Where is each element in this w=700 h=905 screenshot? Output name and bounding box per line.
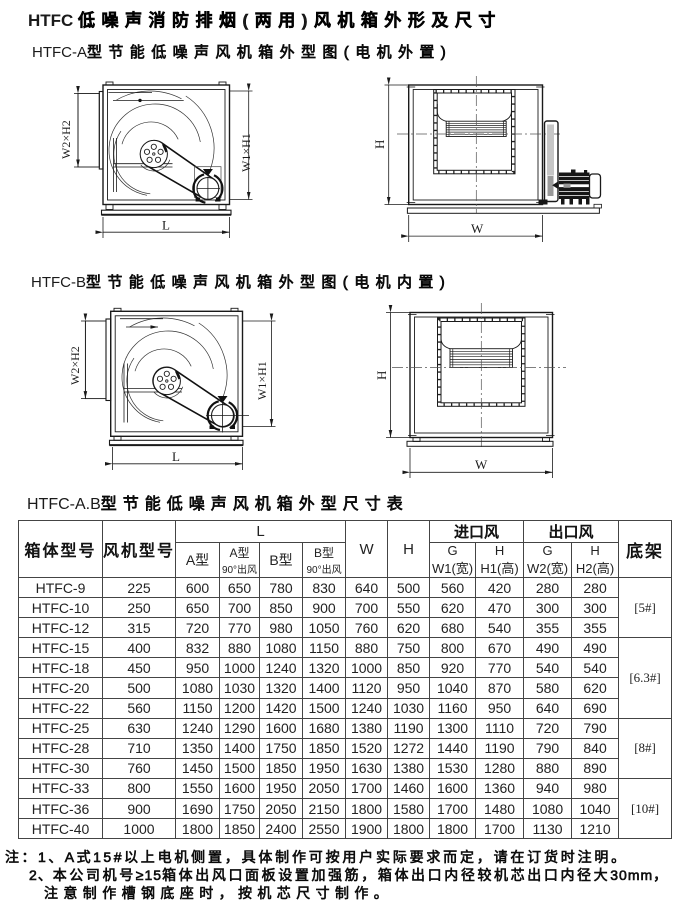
svg-text:W1×H1: W1×H1 (239, 133, 253, 172)
svg-text:W: W (475, 457, 488, 472)
svg-text:H: H (374, 371, 389, 380)
svg-text:L: L (172, 449, 180, 464)
svg-text:W1×H1: W1×H1 (255, 361, 269, 400)
svg-text:W2×H2: W2×H2 (68, 346, 82, 385)
svg-text:H: H (372, 140, 387, 149)
svg-text:L: L (162, 218, 170, 233)
svg-text:W2×H2: W2×H2 (59, 120, 73, 159)
svg-text:W: W (471, 221, 484, 236)
